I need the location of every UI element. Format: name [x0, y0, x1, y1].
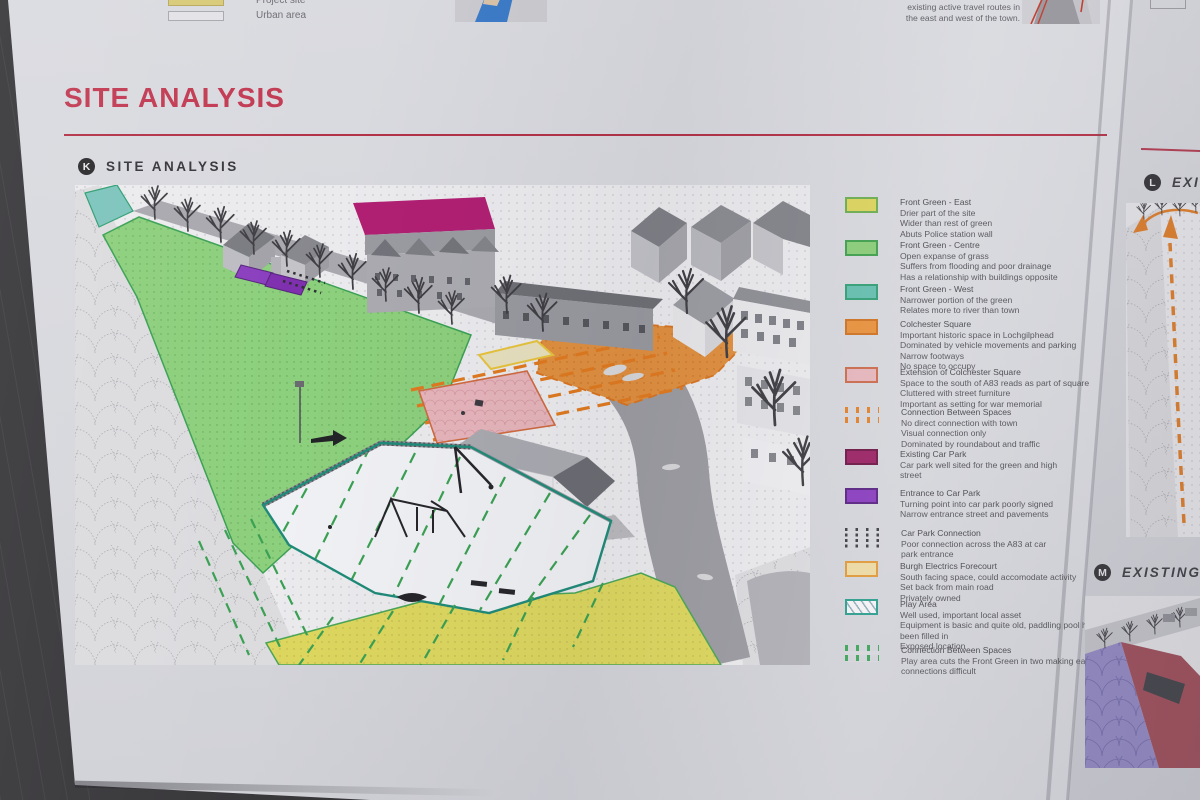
title-rule-right-board: [1141, 148, 1200, 152]
legend-lines: Car park well sited for the green and hi…: [900, 460, 1112, 481]
play-area-swatch: [845, 599, 878, 615]
project-site-swatch: [168, 0, 224, 6]
legend-title: Connection Between Spaces: [901, 407, 1113, 418]
section-k-title: SITE ANALYSIS: [106, 159, 239, 174]
legend-title: Front Green - West: [900, 284, 1112, 295]
section-m-marker: M: [1094, 564, 1111, 581]
car-park-connection-dash-swatch: [845, 528, 879, 550]
existing-car-park-area: [353, 197, 495, 235]
legend-title: Car Park Connection: [901, 528, 1113, 539]
legend-item-front-green-centre: Front Green - Centre Open expanse of gra…: [845, 240, 1112, 282]
legend-item-connection-green: Connection Between Spaces Play area cuts…: [845, 645, 1113, 677]
map-fragment-graphic: [455, 0, 547, 22]
front-green-east-swatch: [845, 197, 878, 213]
project-site-label: Project site: [256, 0, 305, 6]
legend-lines: Drier part of the site Wider than rest o…: [900, 208, 1112, 240]
legend-lines: Turning point into car park poorly signe…: [900, 499, 1112, 520]
burgh-electrics-forecourt-swatch: [845, 561, 878, 577]
front-green-centre-swatch: [845, 240, 878, 256]
front-green-west-swatch: [845, 284, 878, 300]
legend-title: Colchester Square: [900, 319, 1112, 330]
section-m-title: EXISTING F: [1122, 565, 1200, 580]
legend-title: Entrance to Car Park: [900, 488, 1112, 499]
colchester-square-swatch: [845, 319, 878, 335]
legend-lines: Open expanse of grass Suffers from flood…: [900, 251, 1112, 283]
existing-car-park-swatch: [845, 449, 878, 465]
section-l-diagram-fragment: [1126, 203, 1200, 537]
site-analysis-axonometric-diagram: [75, 185, 810, 665]
section-m-header: M EXISTING F: [1094, 564, 1200, 581]
section-l-header: L EXIS: [1144, 174, 1200, 191]
mini-legend-row-project-site: Project site: [168, 0, 306, 8]
legend-item-front-green-east: Front Green - East Drier part of the sit…: [845, 197, 1112, 239]
legend-item-colchester-square: Colchester Square Important historic spa…: [845, 319, 1112, 372]
legend-title: Existing Car Park: [900, 449, 1112, 460]
legend: Front Green - East Drier part of the sit…: [845, 0, 1095, 700]
legend-item-extension-colchester-square: Extension of Colchester Square Space to …: [845, 367, 1112, 409]
legend-title: Play Area: [900, 599, 1112, 610]
legend-lines: Play area cuts the Front Green in two ma…: [901, 656, 1113, 677]
section-k-header: K SITE ANALYSIS: [78, 158, 239, 175]
mini-legend-row-urban-area: Urban area: [168, 8, 306, 23]
section-l-marker: L: [1144, 174, 1161, 191]
legend-item-connection-orange: Connection Between Spaces No direct conn…: [845, 407, 1113, 449]
legend-item-car-park-connection: Car Park Connection Poor connection acro…: [845, 528, 1113, 560]
legend-title: Burgh Electrics Forecourt: [900, 561, 1112, 572]
poster-board: Project site Urban area there is no link…: [0, 0, 1200, 800]
photo-of-site-analysis-board: { "palette": { "board_grey": "#d6d7dc", …: [0, 0, 1200, 800]
legend-item-burgh-electrics-forecourt: Burgh Electrics Forecourt South facing s…: [845, 561, 1112, 603]
entrance-to-car-park-swatch: [845, 488, 878, 504]
legend-title: Front Green - East: [900, 197, 1112, 208]
connection-green-dash-swatch: [845, 645, 879, 662]
extension-colchester-square-swatch: [845, 367, 878, 383]
legend-lines: Narrower portion of the green Relates mo…: [900, 295, 1112, 316]
urban-area-swatch: [168, 11, 224, 21]
section-m-diagram-fragment: [1085, 596, 1200, 768]
urban-area-label: Urban area: [256, 10, 306, 21]
section-k-marker: K: [78, 158, 95, 175]
connection-orange-dash-swatch: [845, 407, 879, 424]
mini-map-legend: Project site Urban area: [168, 0, 306, 23]
legend-lines: No direct connection with town Visual co…: [901, 418, 1113, 450]
page-title: SITE ANALYSIS: [64, 82, 285, 114]
legend-item-front-green-west: Front Green - West Narrower portion of t…: [845, 284, 1112, 316]
section-l-title: EXIS: [1172, 175, 1200, 190]
clipped-map-fragment: [455, 0, 547, 22]
legend-title: Front Green - Centre: [900, 240, 1112, 251]
legend-lines: Poor connection across the A83 at car pa…: [901, 539, 1113, 560]
clipped-outline-box: [1150, 0, 1186, 9]
